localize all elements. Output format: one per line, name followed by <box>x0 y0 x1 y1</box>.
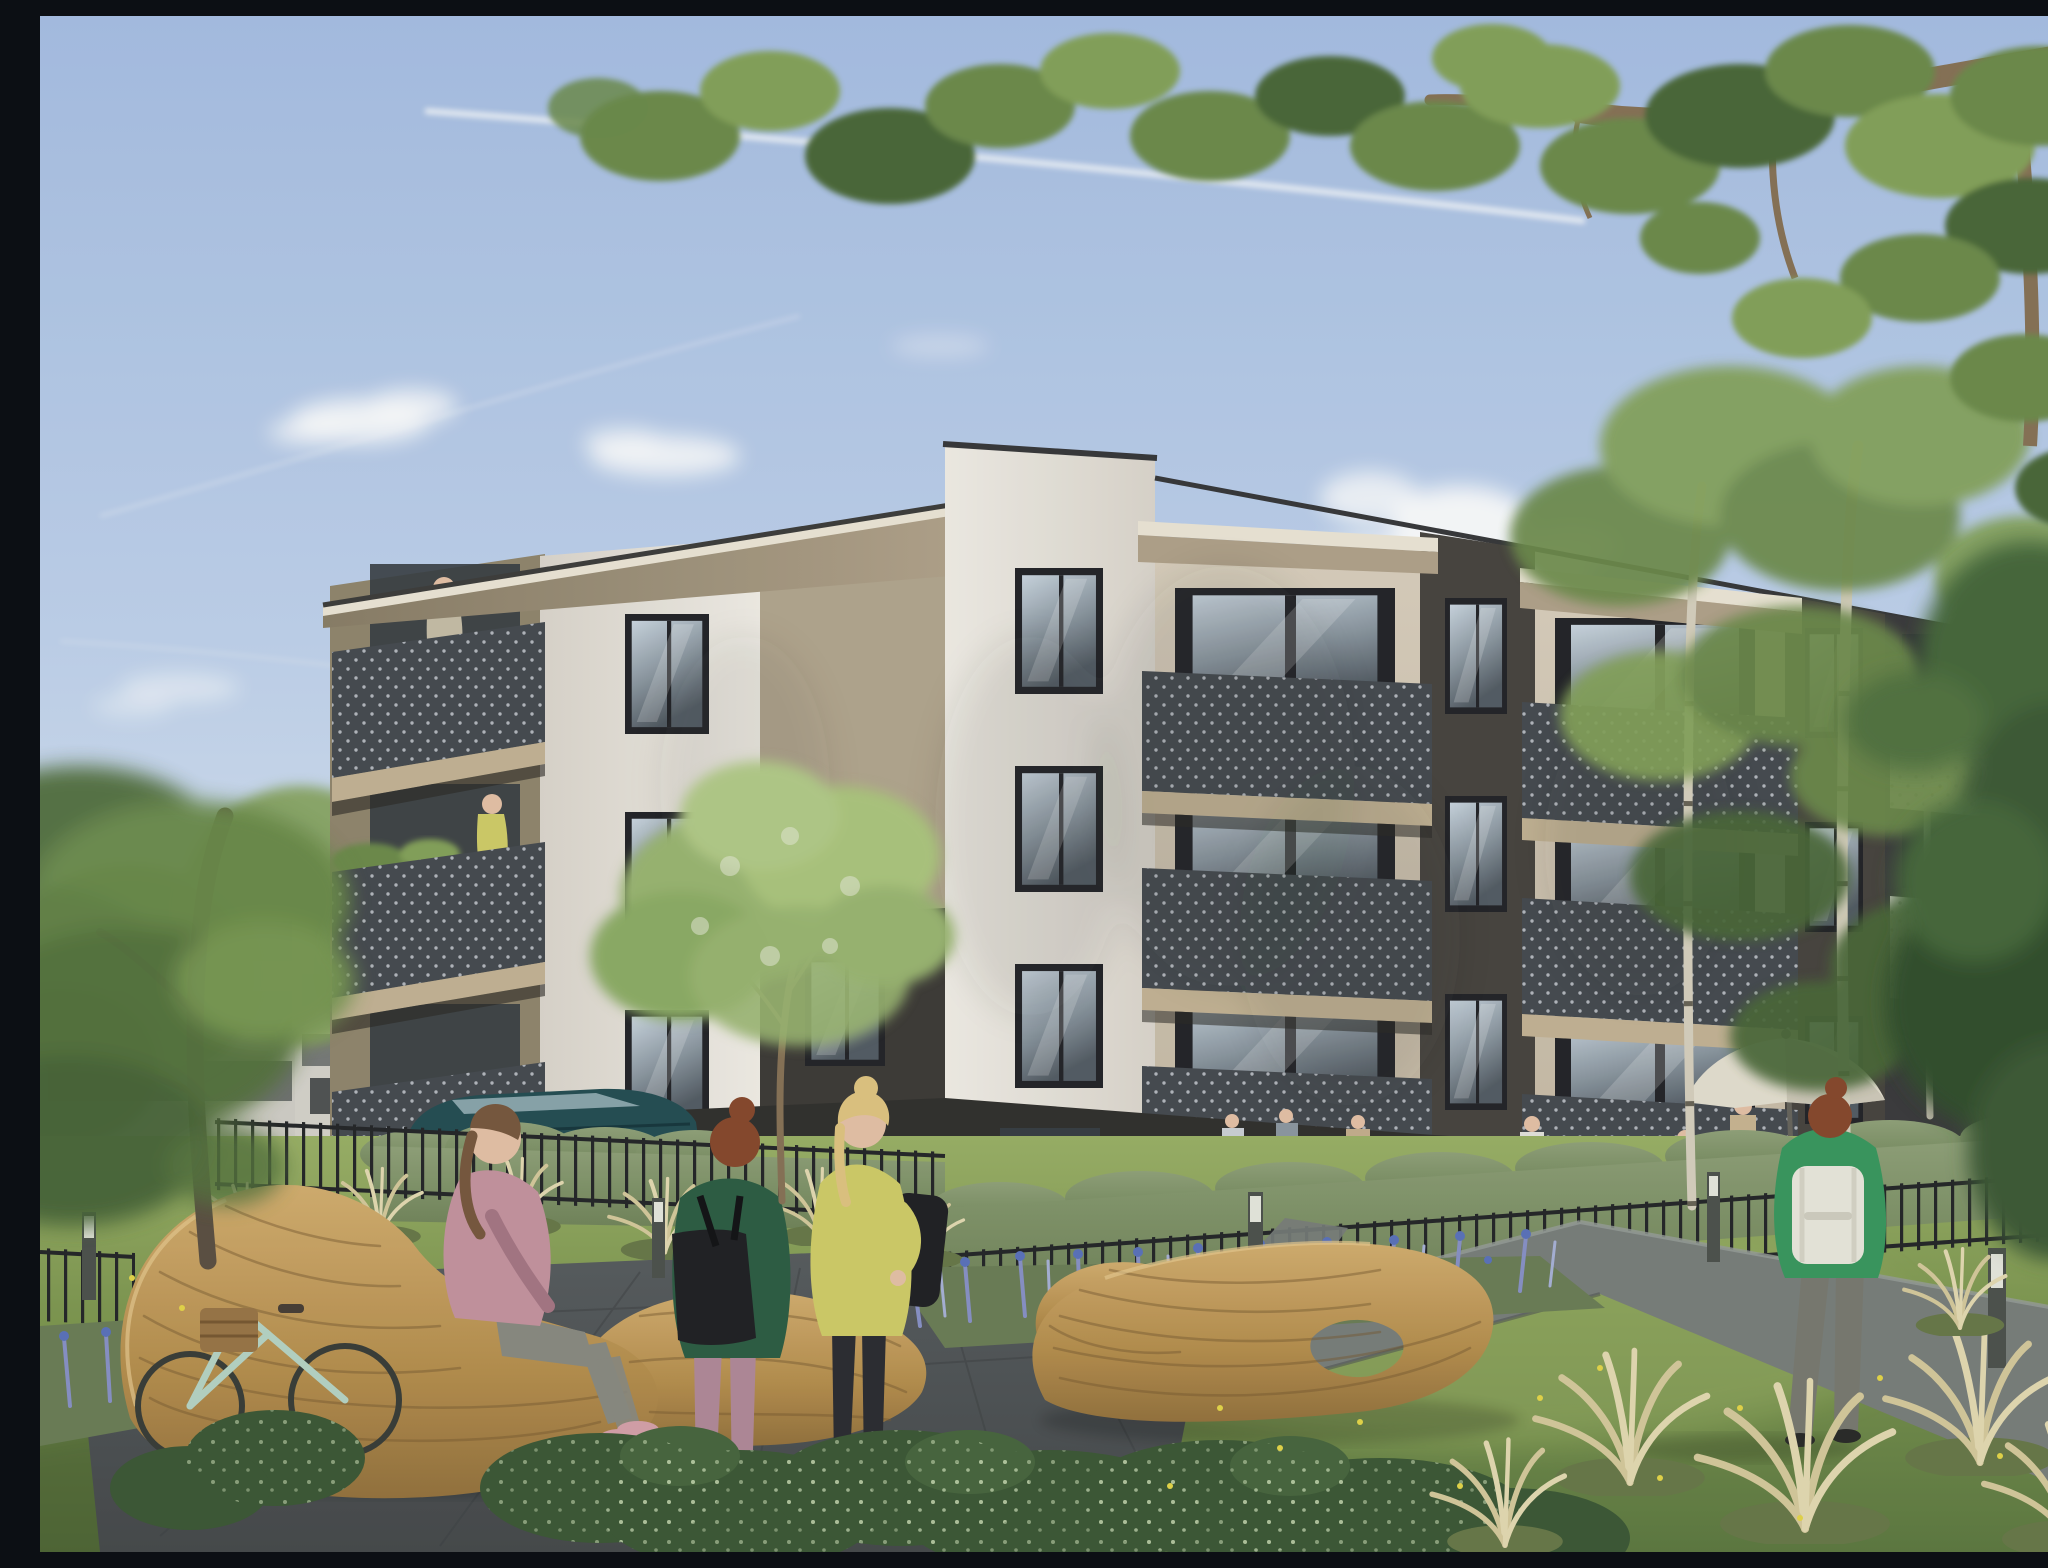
scene-canvas <box>40 16 2048 1552</box>
architectural-render <box>40 16 2048 1552</box>
vignette <box>40 16 2048 1552</box>
